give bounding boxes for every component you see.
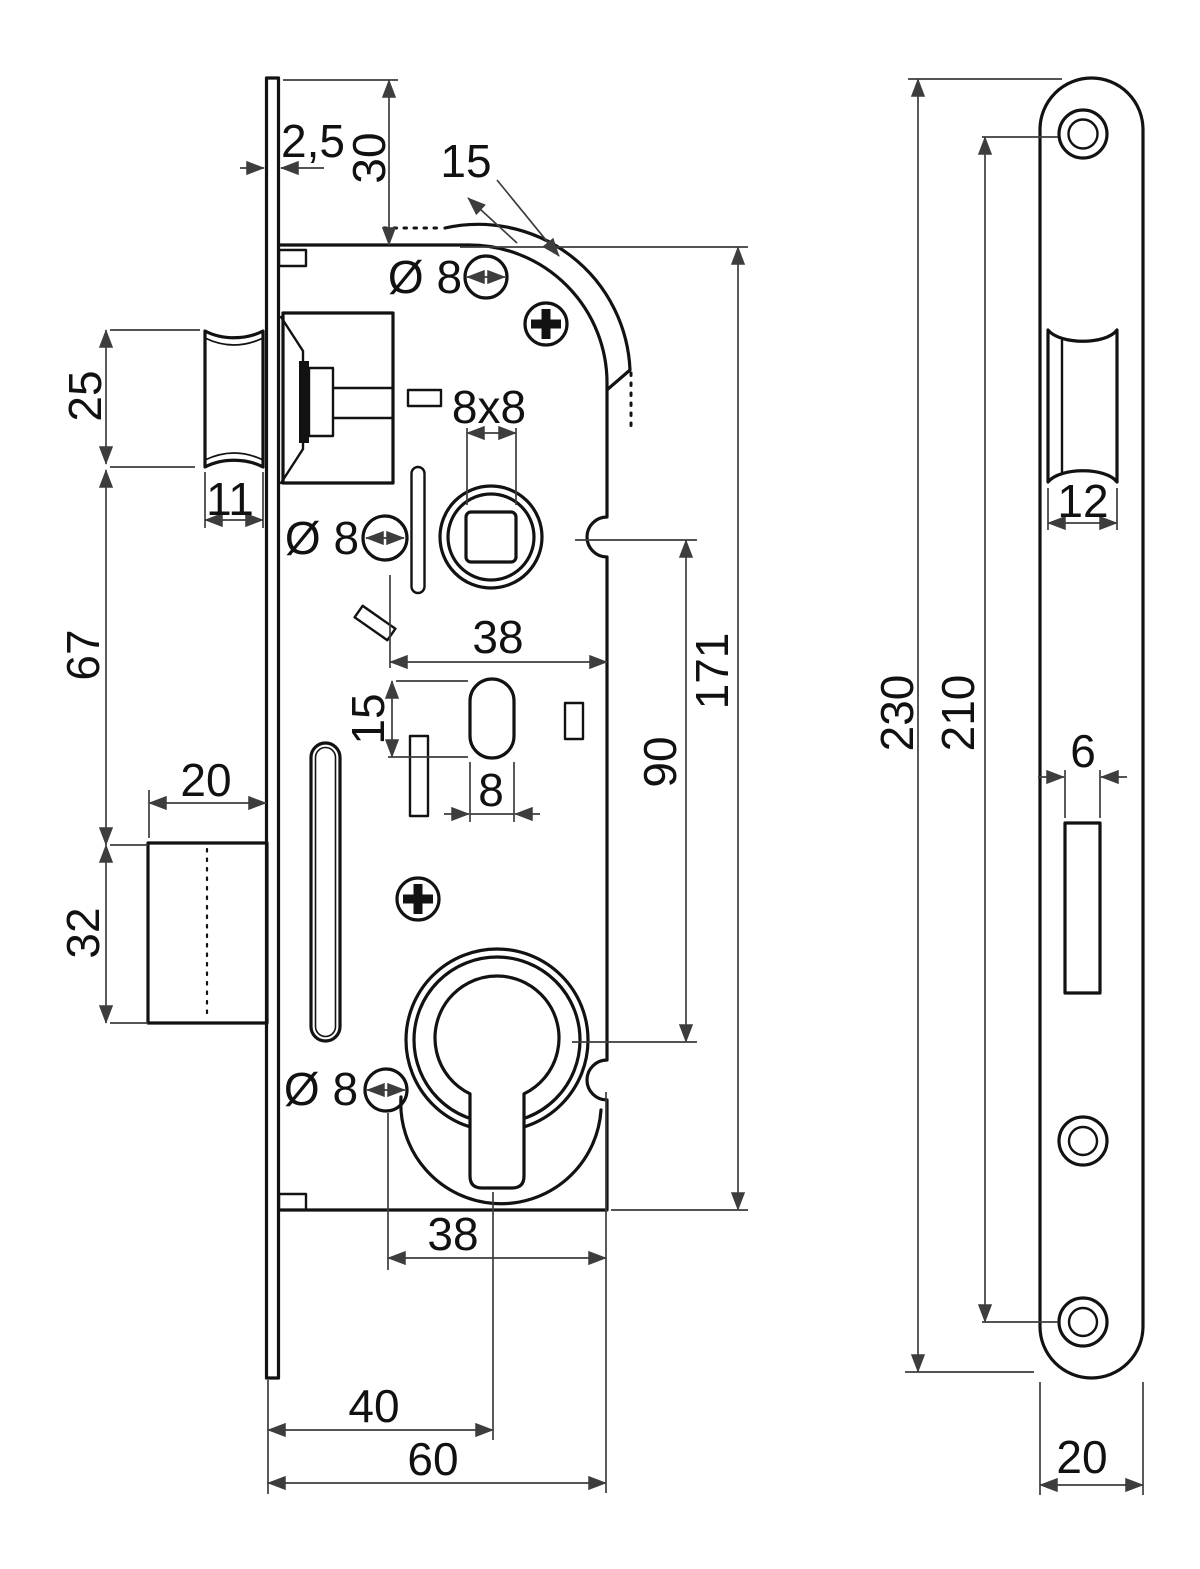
phillips-screw-mid [397, 878, 439, 920]
technical-drawing-page: 2,5 30 15 Ø 8 Ø 8 Ø 8 8x8 25 11 [0, 0, 1200, 1569]
small-slot-b [410, 736, 428, 816]
dim-latch-to-deadbolt: 67 [57, 629, 109, 680]
dim-plate-width: 20 [1056, 1431, 1107, 1483]
spindle-square-hole [466, 512, 516, 562]
dim-backset-lower: 38 [427, 1208, 478, 1260]
dim-deadbolt-depth: 20 [180, 754, 231, 806]
phillips-screw-top [525, 303, 567, 345]
dim-latch-cutout-width: 12 [1057, 475, 1108, 527]
dim-distance-centers: 90 [634, 736, 686, 787]
screw-hole-top-front [1059, 110, 1107, 158]
screw-hole-mid-front [1059, 1117, 1107, 1165]
latch-bolt [205, 331, 263, 467]
dim-deadbolt-height: 32 [57, 907, 109, 958]
oval-slot [470, 679, 514, 758]
deadbolt-cutout [1065, 823, 1100, 993]
follower-spring-bar [299, 361, 309, 443]
spindle-hub-inner [448, 494, 534, 580]
screw-hole-bottom-front [1059, 1298, 1107, 1346]
dim-latch-depth: 11 [206, 473, 254, 525]
dim-deadbolt-cutout-width: 6 [1070, 725, 1096, 777]
dim-latch-height: 25 [59, 370, 111, 421]
cover-corner-arc [445, 224, 630, 389]
dim-spindle-square: 8x8 [452, 381, 526, 433]
dimensions-right: 230 210 12 6 20 [871, 79, 1143, 1495]
dim-slot-width: 8 [478, 764, 504, 816]
dim-plate-length: 230 [871, 675, 923, 752]
faceplate-clip-top [279, 250, 306, 266]
mortise-lock-drawing: 2,5 30 15 Ø 8 Ø 8 Ø 8 8x8 25 11 [0, 0, 1200, 1569]
phillips-cross-icon [403, 884, 433, 914]
dim-screw-top-dia: Ø 8 [388, 251, 462, 303]
spring-wire [412, 467, 425, 593]
dim-cylinder-offset: 40 [348, 1380, 399, 1432]
left-view-lock-case: 2,5 30 15 Ø 8 Ø 8 Ø 8 8x8 25 11 [57, 78, 748, 1494]
phillips-cross-icon [531, 309, 561, 339]
latch-cutout [1048, 330, 1117, 482]
dim-corner-radius: 15 [440, 135, 491, 187]
faceplate-edge [267, 78, 279, 1378]
dim-screw-mid-dia: Ø 8 [285, 512, 359, 564]
dim-top-offset: 30 [343, 132, 395, 183]
dim-screw-bottom-dia: Ø 8 [284, 1063, 358, 1115]
dim-backset-upper: 38 [472, 611, 523, 663]
dim-case-depth: 60 [407, 1433, 458, 1485]
small-slot-c [565, 703, 583, 739]
right-view-faceplate: 230 210 12 6 20 [871, 78, 1143, 1495]
dimensions-left: 2,5 30 15 Ø 8 Ø 8 Ø 8 8x8 25 11 [57, 80, 748, 1494]
faceplate-clip-bottom [279, 1194, 306, 1210]
guide-slot-inner [316, 748, 336, 1037]
spindle-hub-outer [440, 486, 542, 588]
follower-hub [309, 368, 333, 436]
dim-screw-spacing: 210 [932, 675, 984, 752]
dim-case-length: 171 [686, 633, 738, 710]
euro-profile-keyhole [435, 976, 559, 1188]
follower-stem [333, 388, 393, 418]
dim-faceplate-thickness: 2,5 [281, 115, 345, 167]
small-slot-a [408, 390, 441, 406]
cylinder-hole [401, 949, 601, 1204]
dim-slot-height: 15 [342, 693, 394, 744]
